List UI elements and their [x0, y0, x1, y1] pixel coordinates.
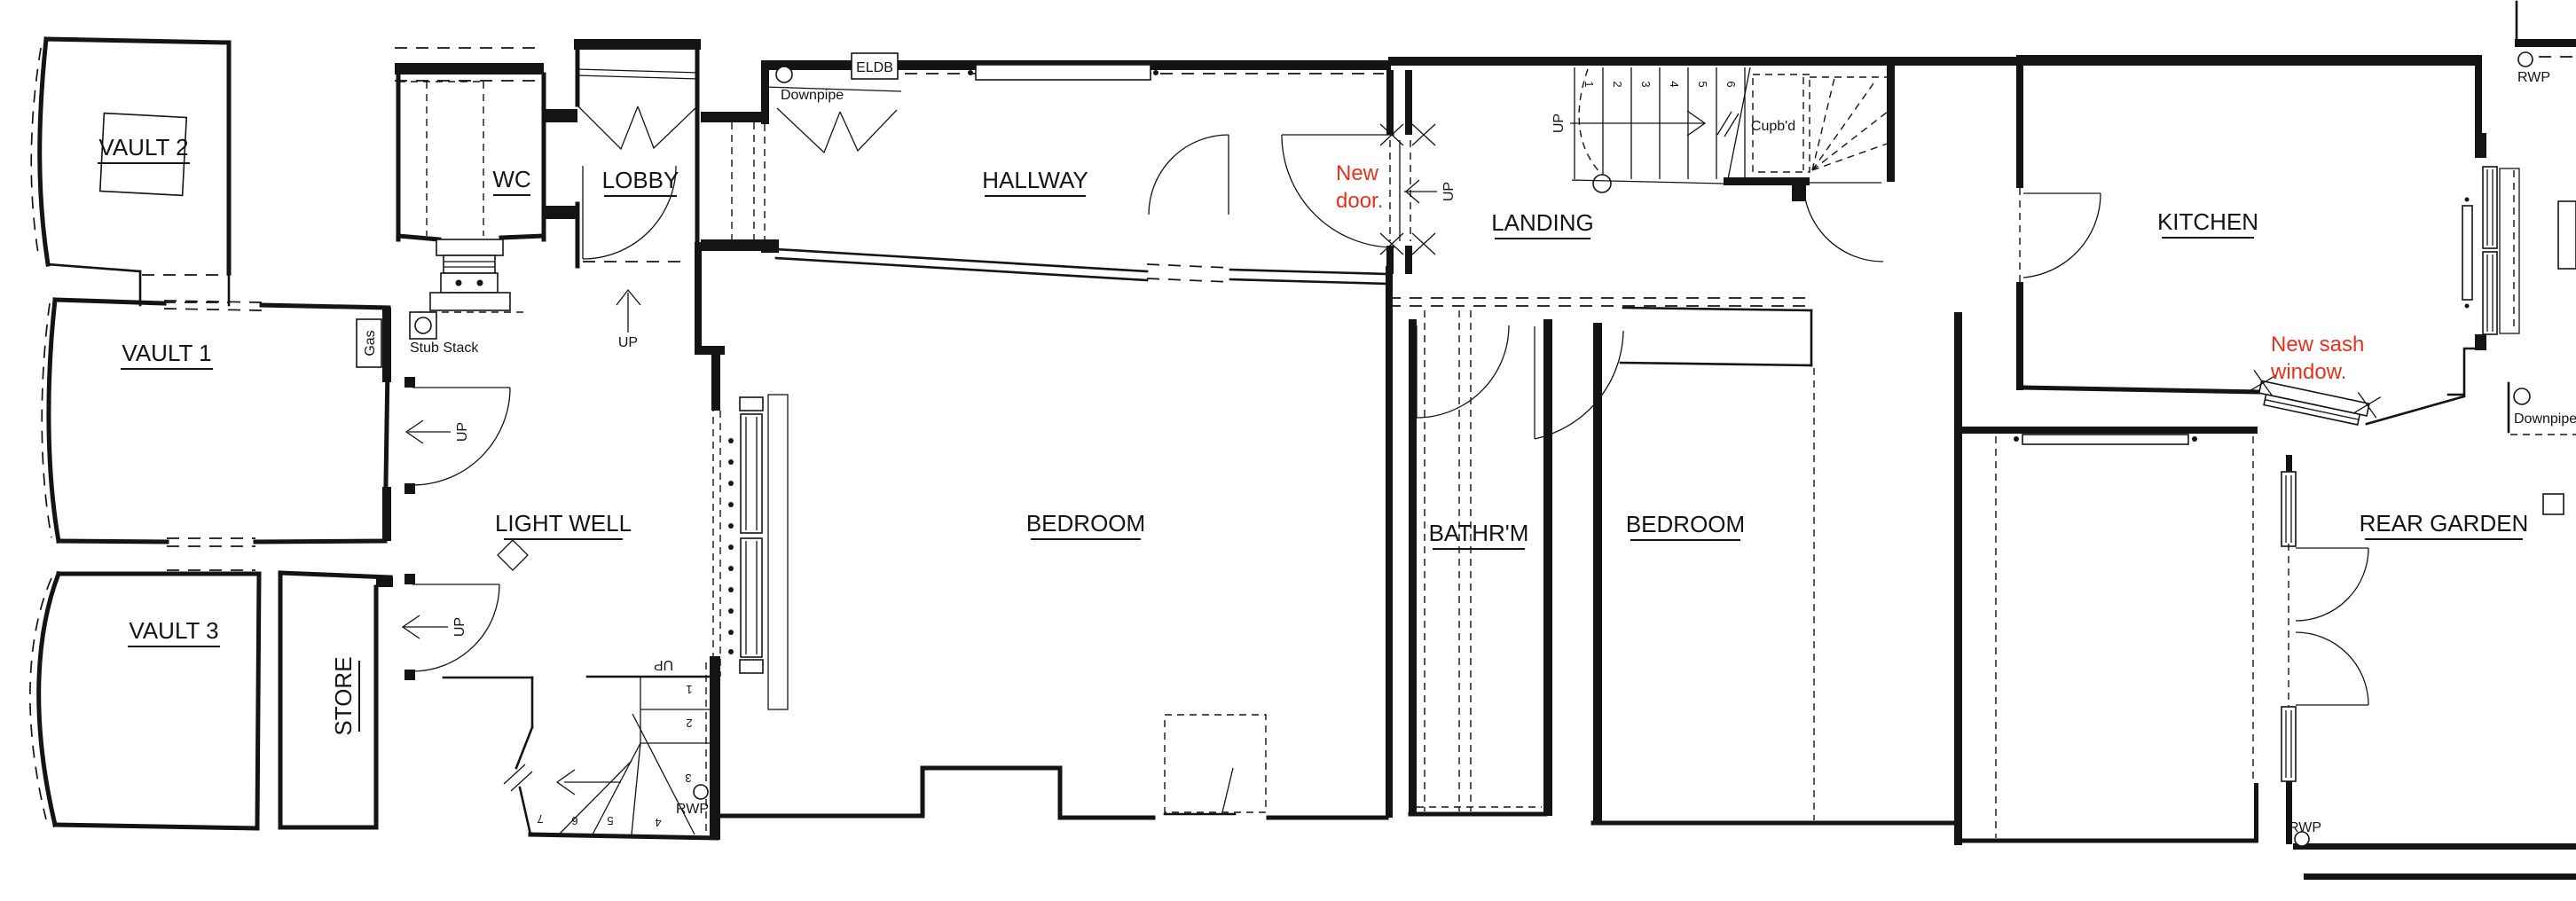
- up-arrow-landing-stairs: UP: [1551, 111, 1739, 137]
- entrance-door-swing: [578, 106, 638, 149]
- up-arrow-lobby: UP: [617, 290, 640, 350]
- rwp-bottom-right: RWP: [2289, 820, 2321, 846]
- downpipe-icon: [2514, 388, 2530, 404]
- stair-winder-dashes: [1803, 77, 1892, 170]
- downpipe-kitchen: Downpipe: [2514, 388, 2576, 427]
- svg-text:3: 3: [1639, 81, 1653, 87]
- bathroom-door-swing: [1417, 325, 1509, 418]
- svg-text:ELDB: ELDB: [856, 60, 893, 75]
- svg-text:UP: UP: [455, 422, 470, 442]
- floor-plan: VAULT 2 VAULT 1 Gas VAULT 3 STOR: [0, 0, 2576, 901]
- up-arrow-new-door: UP: [1404, 180, 1457, 203]
- bay-dashed-outline: [1165, 715, 1266, 812]
- room-label-wc: WC: [492, 166, 530, 192]
- vault-2-room: VAULT 2: [31, 39, 229, 305]
- svg-text:UP: UP: [1551, 114, 1567, 133]
- svg-text:RWP: RWP: [2517, 70, 2550, 85]
- svg-text:2: 2: [1611, 81, 1624, 87]
- annotation-new-sash-line1: New sash: [2271, 333, 2364, 356]
- svg-text:4: 4: [1668, 81, 1681, 87]
- room-label-hallway: HALLWAY: [982, 167, 1088, 193]
- stub-stack-label: Stub Stack: [410, 341, 479, 356]
- light-well: UP UP LIGHT WELL: [382, 242, 788, 838]
- svg-text:UP: UP: [618, 335, 638, 350]
- room-label-lobby: LOBBY: [602, 167, 679, 193]
- floor-plan-drawing: VAULT 2 VAULT 1 Gas VAULT 3 STOR: [0, 0, 2576, 901]
- cupboard: Cupb'd: [1751, 74, 1810, 172]
- right-edge-box: [2558, 201, 2576, 269]
- up-arrow-store: UP: [403, 615, 467, 639]
- annotation-new-door-line1: New: [1336, 161, 1379, 185]
- newel-post: [1593, 175, 1611, 192]
- downpipe-icon: [776, 67, 792, 82]
- landing: 1 2 3 4 5 6 UP Cupb'd LANDING: [1388, 57, 2481, 306]
- annotation-new-door-line2: door.: [1336, 189, 1383, 213]
- garden-post: [2543, 494, 2564, 514]
- rwp-icon: [694, 785, 708, 799]
- svg-text:Downpipe: Downpipe: [2514, 411, 2576, 427]
- svg-text:7: 7: [537, 812, 543, 826]
- rwp-winder: RWP: [676, 785, 709, 817]
- room-label-landing: LANDING: [1491, 209, 1594, 236]
- winder-staircase: UP 1 2 3 4 5 6 7 RWP: [504, 656, 720, 840]
- room-label-store: STORE: [330, 656, 357, 735]
- svg-text:Gas: Gas: [363, 330, 378, 356]
- top-right-structure: RWP: [2515, 2, 2576, 269]
- svg-text:RWP: RWP: [676, 802, 709, 817]
- garden-window-lower: [2281, 707, 2296, 781]
- svg-text:1: 1: [1583, 81, 1596, 87]
- bathroom: BATHR'M: [1409, 310, 1602, 825]
- radiator-hallway: [968, 65, 1158, 80]
- svg-text:UP: UP: [1441, 182, 1457, 201]
- svg-text:Downpipe: Downpipe: [781, 88, 844, 103]
- eldb-box: ELDB: [852, 53, 898, 79]
- svg-text:6: 6: [571, 814, 577, 827]
- bedroom-1: BEDROOM: [720, 266, 1393, 818]
- svg-text:5: 5: [607, 814, 613, 827]
- svg-text:Cupb'd: Cupb'd: [1751, 119, 1795, 134]
- svg-text:5: 5: [1696, 81, 1709, 87]
- svg-text:4: 4: [655, 816, 661, 829]
- french-doors: [2289, 544, 2368, 709]
- room-label-rear-garden: REAR GARDEN: [2360, 510, 2529, 537]
- kitchen-door-swing: [2023, 193, 2101, 278]
- room-label-vault2: VAULT 2: [98, 134, 188, 161]
- rear-garden: RWP REAR GARDEN: [2281, 455, 2576, 880]
- vault-3-room: VAULT 3: [30, 574, 259, 828]
- svg-text:2: 2: [686, 717, 692, 730]
- gully-icon: [498, 540, 528, 570]
- room-label-bathroom: BATHR'M: [1429, 520, 1529, 546]
- svg-text:3: 3: [685, 772, 691, 785]
- kitchen-side-window: [2483, 167, 2519, 334]
- kitchen: KITCHEN Downpipe: [2016, 55, 2576, 435]
- new-door: UP New door.: [1282, 70, 1457, 274]
- radiator-kitchen: [2462, 198, 2472, 309]
- annotation-new-sash-line2: window.: [2270, 360, 2346, 384]
- vault-1-room: VAULT 1 Gas: [42, 300, 389, 570]
- stub-stack: Stub Stack: [410, 239, 523, 356]
- room-label-bedroom2: BEDROOM: [1626, 511, 1745, 537]
- rear-room: [1962, 427, 2258, 842]
- svg-text:6: 6: [1724, 81, 1738, 87]
- wc-room: WC: [395, 48, 544, 239]
- porch-door-swing: [777, 108, 840, 153]
- garden-window-upper: [2281, 472, 2296, 546]
- landing-door-swing: [1803, 182, 1883, 262]
- downpipe-hallway: Downpipe: [776, 67, 844, 103]
- landing-staircase: 1 2 3 4 5 6 UP: [1551, 67, 1750, 192]
- rwp-icon: [2295, 832, 2309, 846]
- rwp-icon: [2518, 52, 2533, 67]
- lobby-room: LOBBY UP: [544, 39, 776, 350]
- gas-meter: Gas: [357, 319, 381, 367]
- room-label-vault1: VAULT 1: [122, 340, 211, 366]
- svg-text:1: 1: [686, 683, 692, 696]
- room-label-light-well: LIGHT WELL: [495, 510, 632, 537]
- break-mark: [504, 764, 532, 791]
- radiator-rear: [2014, 435, 2197, 444]
- room-label-kitchen: KITCHEN: [2157, 208, 2258, 235]
- hallway-door-swing: [1149, 135, 1229, 215]
- up-arrow-vault1: UP: [406, 420, 470, 443]
- svg-text:UP: UP: [452, 617, 467, 637]
- hallway: Downpipe ELDB HALLWAY: [761, 53, 1391, 284]
- svg-text:UP: UP: [654, 657, 673, 672]
- room-label-bedroom1: BEDROOM: [1026, 510, 1145, 537]
- room-label-vault3: VAULT 3: [129, 617, 218, 644]
- store-room: STORE: [280, 573, 393, 827]
- lightwell-window: [728, 395, 788, 709]
